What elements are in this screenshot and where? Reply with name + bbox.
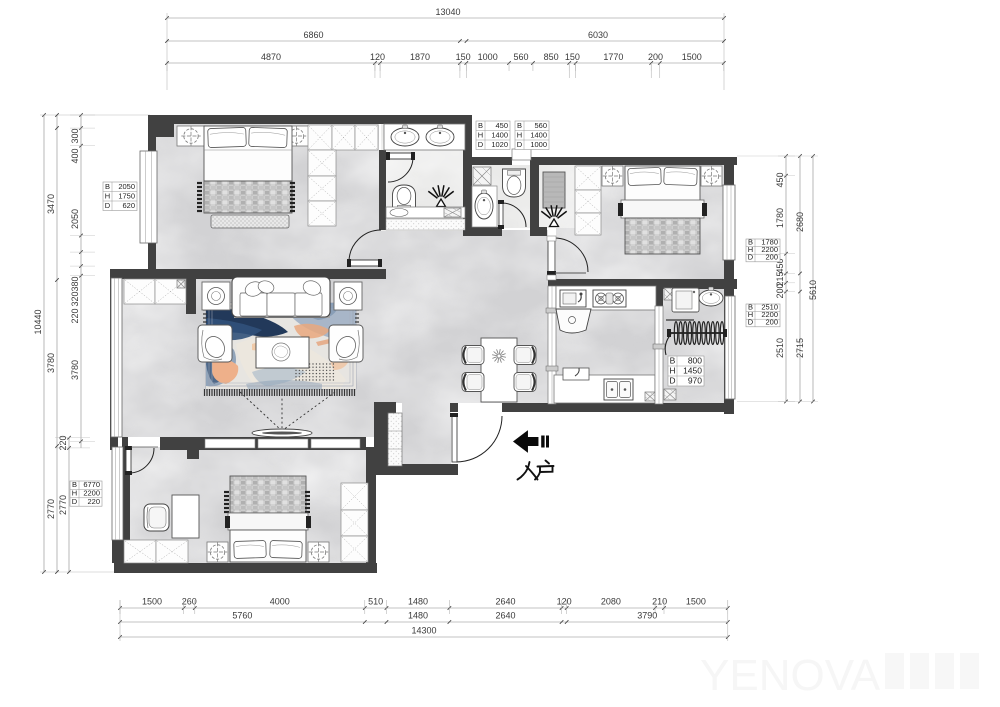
svg-text:210: 210 bbox=[652, 597, 667, 607]
svg-text:850: 850 bbox=[544, 52, 559, 62]
svg-text:1870: 1870 bbox=[410, 52, 430, 62]
svg-text:D: D bbox=[669, 375, 675, 385]
svg-text:1750: 1750 bbox=[118, 191, 135, 200]
svg-text:H: H bbox=[105, 191, 110, 200]
svg-text:200: 200 bbox=[775, 283, 785, 298]
svg-text:220: 220 bbox=[70, 308, 80, 323]
svg-text:1000: 1000 bbox=[530, 140, 547, 149]
svg-text:6860: 6860 bbox=[303, 30, 323, 40]
svg-text:2050: 2050 bbox=[70, 209, 80, 229]
svg-text:13040: 13040 bbox=[435, 7, 460, 17]
svg-text:1480: 1480 bbox=[408, 597, 428, 607]
svg-text:D: D bbox=[748, 253, 754, 262]
svg-text:6030: 6030 bbox=[588, 30, 608, 40]
svg-text:2510: 2510 bbox=[775, 338, 785, 358]
svg-text:150: 150 bbox=[565, 52, 580, 62]
svg-text:3780: 3780 bbox=[46, 353, 56, 373]
svg-text:D: D bbox=[105, 201, 111, 210]
svg-text:1450: 1450 bbox=[683, 365, 702, 375]
svg-text:2640: 2640 bbox=[495, 611, 515, 621]
svg-text:200: 200 bbox=[765, 253, 778, 262]
svg-text:450: 450 bbox=[495, 121, 508, 130]
svg-text:1480: 1480 bbox=[408, 611, 428, 621]
svg-text:B: B bbox=[517, 121, 522, 130]
svg-text:2050: 2050 bbox=[118, 182, 135, 191]
svg-text:B: B bbox=[670, 355, 676, 365]
svg-text:510: 510 bbox=[368, 597, 383, 607]
svg-text:1400: 1400 bbox=[530, 130, 547, 139]
svg-text:B: B bbox=[478, 121, 483, 130]
svg-text:1780: 1780 bbox=[775, 208, 785, 228]
svg-text:120: 120 bbox=[370, 52, 385, 62]
svg-text:1500: 1500 bbox=[686, 597, 706, 607]
svg-text:2680: 2680 bbox=[795, 212, 805, 232]
svg-text:3470: 3470 bbox=[46, 194, 56, 214]
svg-text:5760: 5760 bbox=[232, 611, 252, 621]
svg-text:H: H bbox=[669, 365, 675, 375]
svg-text:1500: 1500 bbox=[682, 52, 702, 62]
svg-text:220: 220 bbox=[58, 435, 68, 450]
svg-text:380: 380 bbox=[70, 276, 80, 291]
svg-text:1020: 1020 bbox=[491, 140, 508, 149]
svg-text:2640: 2640 bbox=[495, 597, 515, 607]
svg-text:4000: 4000 bbox=[270, 597, 290, 607]
svg-text:560: 560 bbox=[534, 121, 547, 130]
svg-text:200: 200 bbox=[765, 318, 778, 327]
svg-text:5610: 5610 bbox=[808, 280, 818, 300]
svg-text:2770: 2770 bbox=[58, 495, 68, 515]
svg-text:150: 150 bbox=[456, 52, 471, 62]
svg-text:YENOVA: YENOVA bbox=[700, 651, 881, 700]
svg-text:H: H bbox=[517, 130, 522, 139]
svg-text:1770: 1770 bbox=[603, 52, 623, 62]
svg-text:2770: 2770 bbox=[46, 499, 56, 519]
svg-text:970: 970 bbox=[688, 375, 702, 385]
svg-text:14300: 14300 bbox=[411, 626, 436, 636]
svg-text:200: 200 bbox=[648, 52, 663, 62]
svg-text:1000: 1000 bbox=[478, 52, 498, 62]
svg-text:1400: 1400 bbox=[491, 130, 508, 139]
svg-text:1500: 1500 bbox=[142, 597, 162, 607]
svg-text:120: 120 bbox=[557, 597, 572, 607]
svg-text:300: 300 bbox=[70, 128, 80, 143]
svg-text:4870: 4870 bbox=[261, 52, 281, 62]
svg-text:3790: 3790 bbox=[637, 611, 657, 621]
svg-text:2080: 2080 bbox=[601, 597, 621, 607]
svg-text:D: D bbox=[72, 497, 78, 506]
svg-text:3780: 3780 bbox=[70, 360, 80, 380]
svg-text:450: 450 bbox=[775, 172, 785, 187]
svg-text:400: 400 bbox=[70, 148, 80, 163]
svg-text:220: 220 bbox=[87, 497, 100, 506]
svg-text:2715: 2715 bbox=[795, 338, 805, 358]
svg-text:320: 320 bbox=[70, 291, 80, 306]
svg-text:D: D bbox=[478, 140, 484, 149]
svg-text:800: 800 bbox=[688, 355, 702, 365]
svg-text:B: B bbox=[105, 182, 110, 191]
svg-text:D: D bbox=[517, 140, 523, 149]
svg-text:H: H bbox=[478, 130, 483, 139]
svg-text:560: 560 bbox=[513, 52, 528, 62]
svg-text:D: D bbox=[748, 318, 754, 327]
svg-text:10440: 10440 bbox=[33, 309, 43, 334]
svg-text:620: 620 bbox=[122, 201, 135, 210]
